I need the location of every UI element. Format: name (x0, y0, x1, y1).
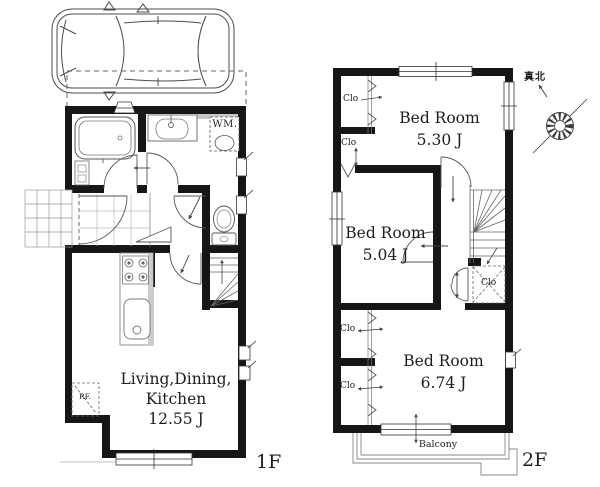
bedroom-bottom-name: Bed Room (376, 350, 511, 372)
closet-label-3: Clo (481, 278, 496, 288)
bedroom-top-name: Bed Room (372, 107, 507, 129)
car-outline (52, 2, 234, 100)
ldk-room-label: Living,Dining, Kitchen 12.55 J (106, 369, 246, 429)
ldk-room-name-line1: Living,Dining, (106, 369, 246, 389)
closet-label-1: Clo (343, 94, 358, 104)
bedroom-mid-label: Bed Room 5.04 J (318, 222, 453, 266)
entrance-door (79, 194, 127, 245)
bathroom-door (104, 155, 137, 188)
ldk-door (170, 253, 201, 284)
bedroom-top-area: 5.30 J (372, 129, 507, 151)
bedroom-bottom-label: Bed Room 6.74 J (376, 350, 511, 394)
floor-plan-drawing (0, 0, 600, 487)
ldk-room-name-line2: Kitchen (106, 389, 246, 409)
balcony-label: Balcony (398, 439, 478, 450)
genkan-tiles (80, 193, 150, 247)
parking-space (67, 71, 246, 107)
closet-label-4: Clo (340, 324, 355, 334)
shoe-cabinet (136, 227, 171, 242)
bedroom-mid-name: Bed Room (318, 222, 453, 244)
toilet (212, 206, 236, 245)
stairs-2f (470, 185, 505, 264)
floor1-label: 1F (256, 451, 281, 473)
washing-machine-label: WM. (209, 119, 241, 130)
bathtub (75, 117, 135, 185)
refrigerator-label: RF. (71, 392, 99, 401)
stairs-1f (210, 258, 238, 306)
entrance-porch-tiles (25, 190, 72, 247)
ldk-room-area: 12.55 J (106, 409, 246, 429)
washroom-door (134, 153, 178, 184)
floor2-label: 2F (522, 449, 547, 471)
true-north-label: 真北 (524, 68, 546, 83)
closet-label-2: Clo (341, 138, 356, 148)
toilet-door (174, 196, 206, 228)
bedroom-bottom-door (451, 268, 468, 301)
floor-plan-page: WM. Living,Dining, Kitchen 12.55 J RF. 1… (0, 0, 600, 487)
bedroom-bottom-area: 6.74 J (376, 372, 511, 394)
closet-label-5: Clo (340, 381, 355, 391)
bedroom-mid-area: 5.04 J (318, 244, 453, 266)
hall-arrow (189, 197, 200, 219)
kitchen-sink (124, 299, 150, 339)
bedroom-top-door (441, 157, 471, 202)
compass-rose (533, 85, 587, 153)
bedroom-top-label: Bed Room 5.30 J (372, 107, 507, 151)
